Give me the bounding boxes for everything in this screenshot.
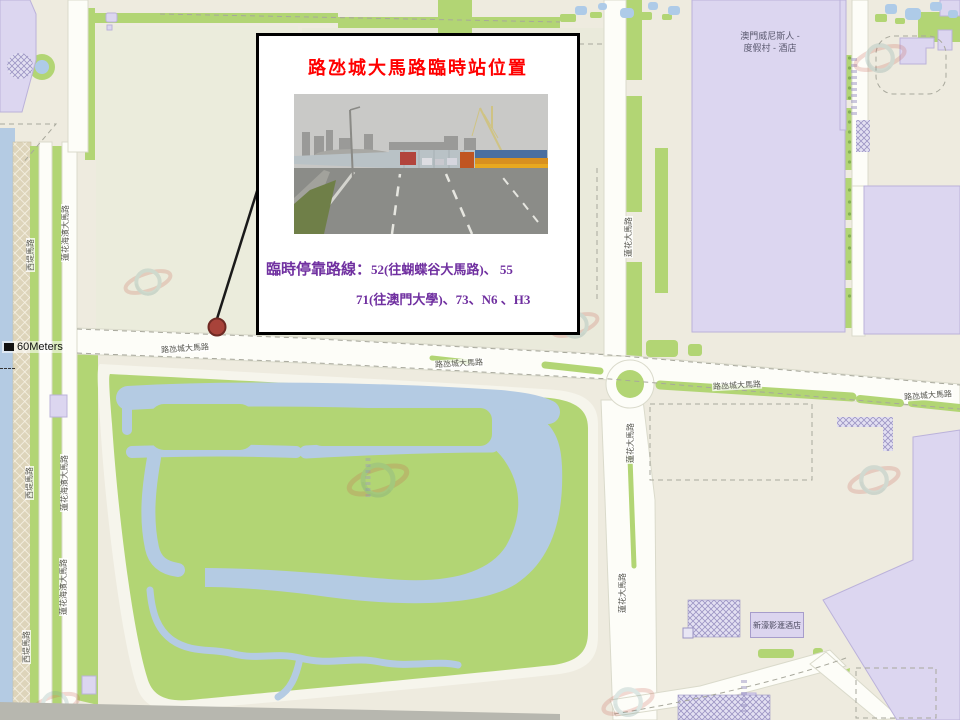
road-label-saitai-1: 西堤馬路 <box>26 238 35 272</box>
venetian-label-line1: 澳門威尼斯人 - <box>725 30 815 42</box>
roundabout <box>606 360 654 408</box>
site-photo <box>294 94 548 234</box>
plaza-building <box>864 186 960 334</box>
scale-label: 60Meters <box>17 341 63 353</box>
scale-indicator: 60Meters <box>2 341 65 353</box>
road-label-lotus-3: 蓮花大馬路 <box>618 572 627 614</box>
road-label-saitai-2: 西堤馬路 <box>25 466 34 500</box>
studio-city-label-text: 新濠影滙酒店 <box>753 620 801 631</box>
callout-title: 路氹城大馬路臨時站位置 <box>259 54 577 80</box>
callout-box[interactable]: 路氹城大馬路臨時站位置 <box>256 33 580 335</box>
map-figure: 路氹城大馬路 路氹城大馬路 路氹城大馬路 路氹城大馬路 西堤馬路 蓮花海濱大馬路… <box>0 0 960 720</box>
callout-routes-line2: 71(往澳門大學)、73、N6 、H3 <box>356 289 530 308</box>
wetland-islands <box>150 404 492 450</box>
road-label-lotus-2: 蓮花大馬路 <box>626 422 635 464</box>
site-photo-scene <box>294 94 548 234</box>
routes-prefix: 臨時停靠路線： <box>266 262 371 278</box>
wetland-reserve <box>98 364 598 711</box>
venetian-label: 澳門威尼斯人 - 度假村 - 酒店 <box>725 30 815 54</box>
road-label-lotus-1: 蓮花大馬路 <box>624 216 633 258</box>
road-label-marginal-3: 蓮花海濱大馬路 <box>59 558 68 616</box>
scale-bar-icon <box>4 343 14 351</box>
scale-ticks <box>0 368 15 369</box>
pond <box>35 60 49 74</box>
routes-line1-value: 52(往蝴蝶谷大馬路)、 55 <box>371 262 513 277</box>
venetian-label-line2: 度假村 - 酒店 <box>725 42 815 54</box>
temporary-stop-marker[interactable] <box>209 319 226 336</box>
road-label-marginal-2: 蓮花海濱大馬路 <box>60 454 69 512</box>
studio-city-label: 新濠影滙酒店 <box>750 612 804 638</box>
road-label-saitai-3: 西堤馬路 <box>22 630 31 664</box>
callout-routes-line1: 臨時停靠路線：52(往蝴蝶谷大馬路)、 55 <box>266 258 513 279</box>
road-label-marginal-1: 蓮花海濱大馬路 <box>61 204 70 262</box>
